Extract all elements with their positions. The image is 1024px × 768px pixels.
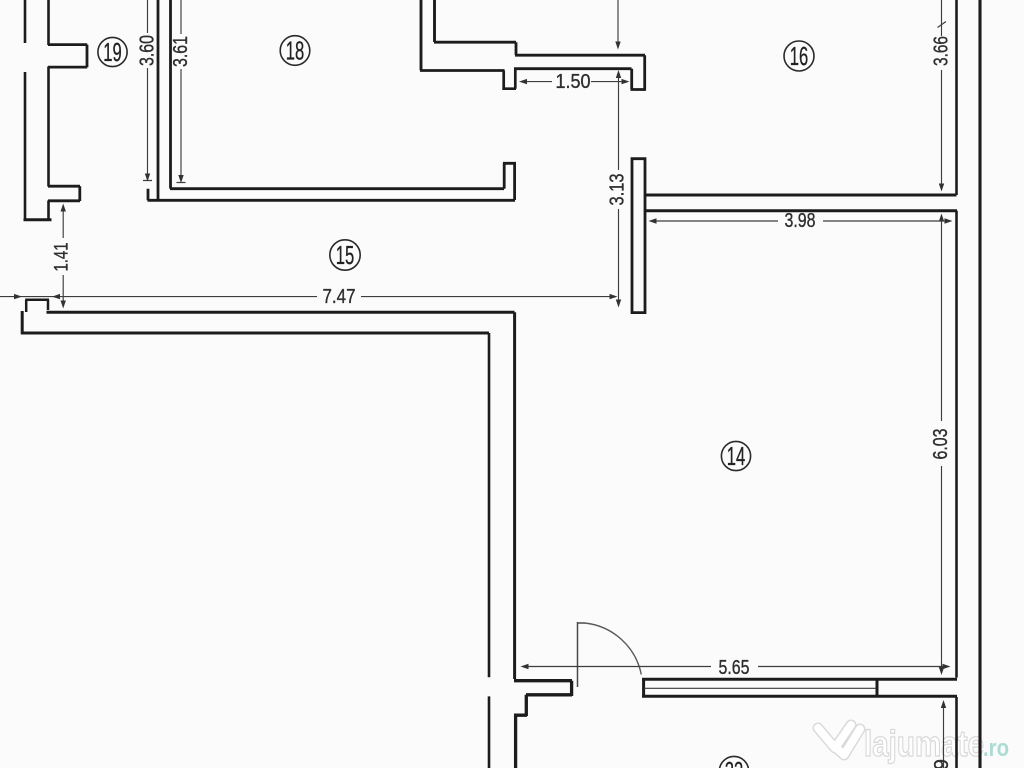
svg-text:.ro: .ro	[983, 735, 1009, 762]
svg-text:5.65: 5.65	[719, 657, 750, 679]
svg-text:7.47: 7.47	[323, 286, 356, 308]
svg-text:18: 18	[286, 38, 305, 66]
svg-text:3.13: 3.13	[607, 174, 629, 206]
svg-text:1.41: 1.41	[51, 243, 73, 272]
svg-text:16: 16	[790, 43, 809, 71]
svg-text:lajumate: lajumate	[864, 723, 984, 764]
svg-text:3.61: 3.61	[170, 36, 192, 67]
svg-text:6.03: 6.03	[930, 429, 952, 460]
svg-text:1.50: 1.50	[556, 71, 591, 93]
svg-text:14: 14	[727, 443, 746, 471]
svg-text:3.60: 3.60	[137, 35, 159, 66]
svg-text:19: 19	[103, 39, 122, 67]
svg-text:3.98: 3.98	[785, 210, 816, 232]
svg-text:23: 23	[725, 758, 744, 768]
svg-text:15: 15	[336, 242, 355, 270]
svg-text:9: 9	[931, 759, 953, 768]
svg-text:3.66: 3.66	[931, 36, 953, 66]
